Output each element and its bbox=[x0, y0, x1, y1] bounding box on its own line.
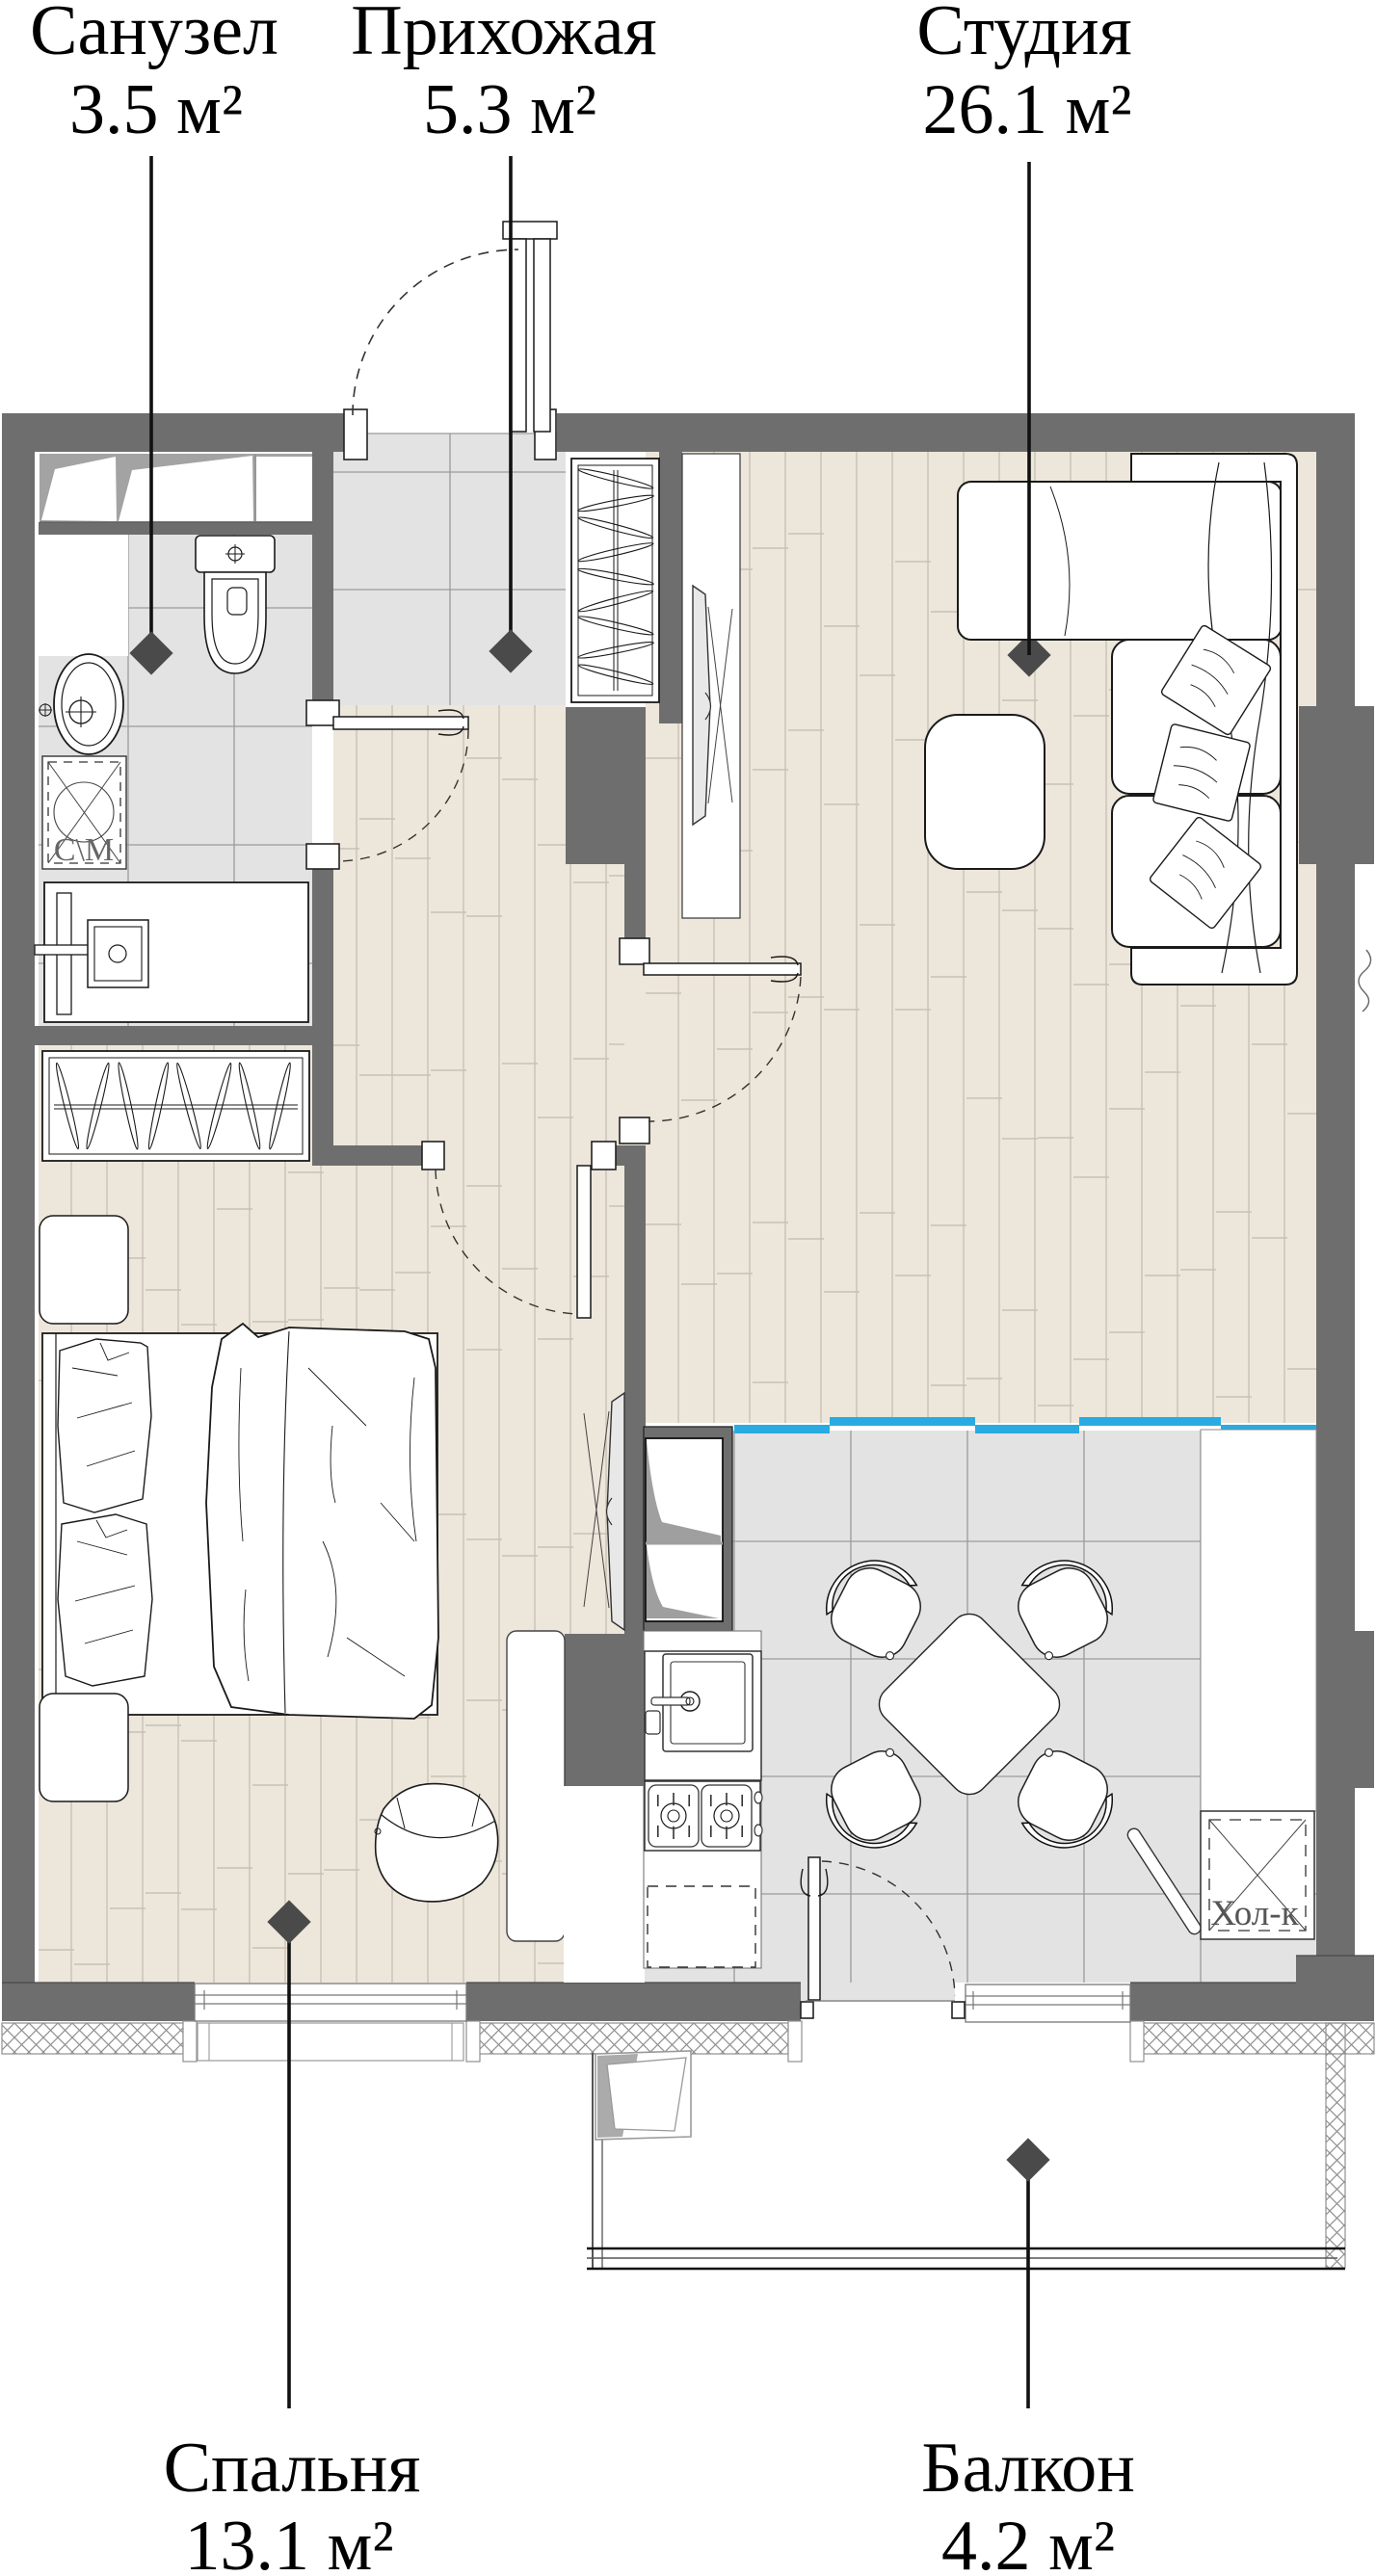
svg-text:Прихожая: Прихожая bbox=[351, 0, 656, 70]
svg-text:3.5 м²: 3.5 м² bbox=[69, 70, 243, 149]
svg-text:26.1 м²: 26.1 м² bbox=[922, 70, 1131, 149]
svg-text:13.1 м²: 13.1 м² bbox=[184, 2507, 393, 2571]
svg-text:Балкон: Балкон bbox=[921, 2429, 1135, 2508]
svg-text:Хол-к: Хол-к bbox=[1210, 1894, 1299, 1933]
svg-text:Санузел: Санузел bbox=[30, 0, 278, 70]
svg-text:4.2 м²: 4.2 м² bbox=[941, 2507, 1115, 2571]
svg-text:5.3 м²: 5.3 м² bbox=[423, 70, 596, 149]
svg-text:Спальня: Спальня bbox=[164, 2429, 421, 2508]
svg-text:С\М: С\М bbox=[54, 832, 114, 868]
svg-text:Студия: Студия bbox=[916, 0, 1131, 70]
